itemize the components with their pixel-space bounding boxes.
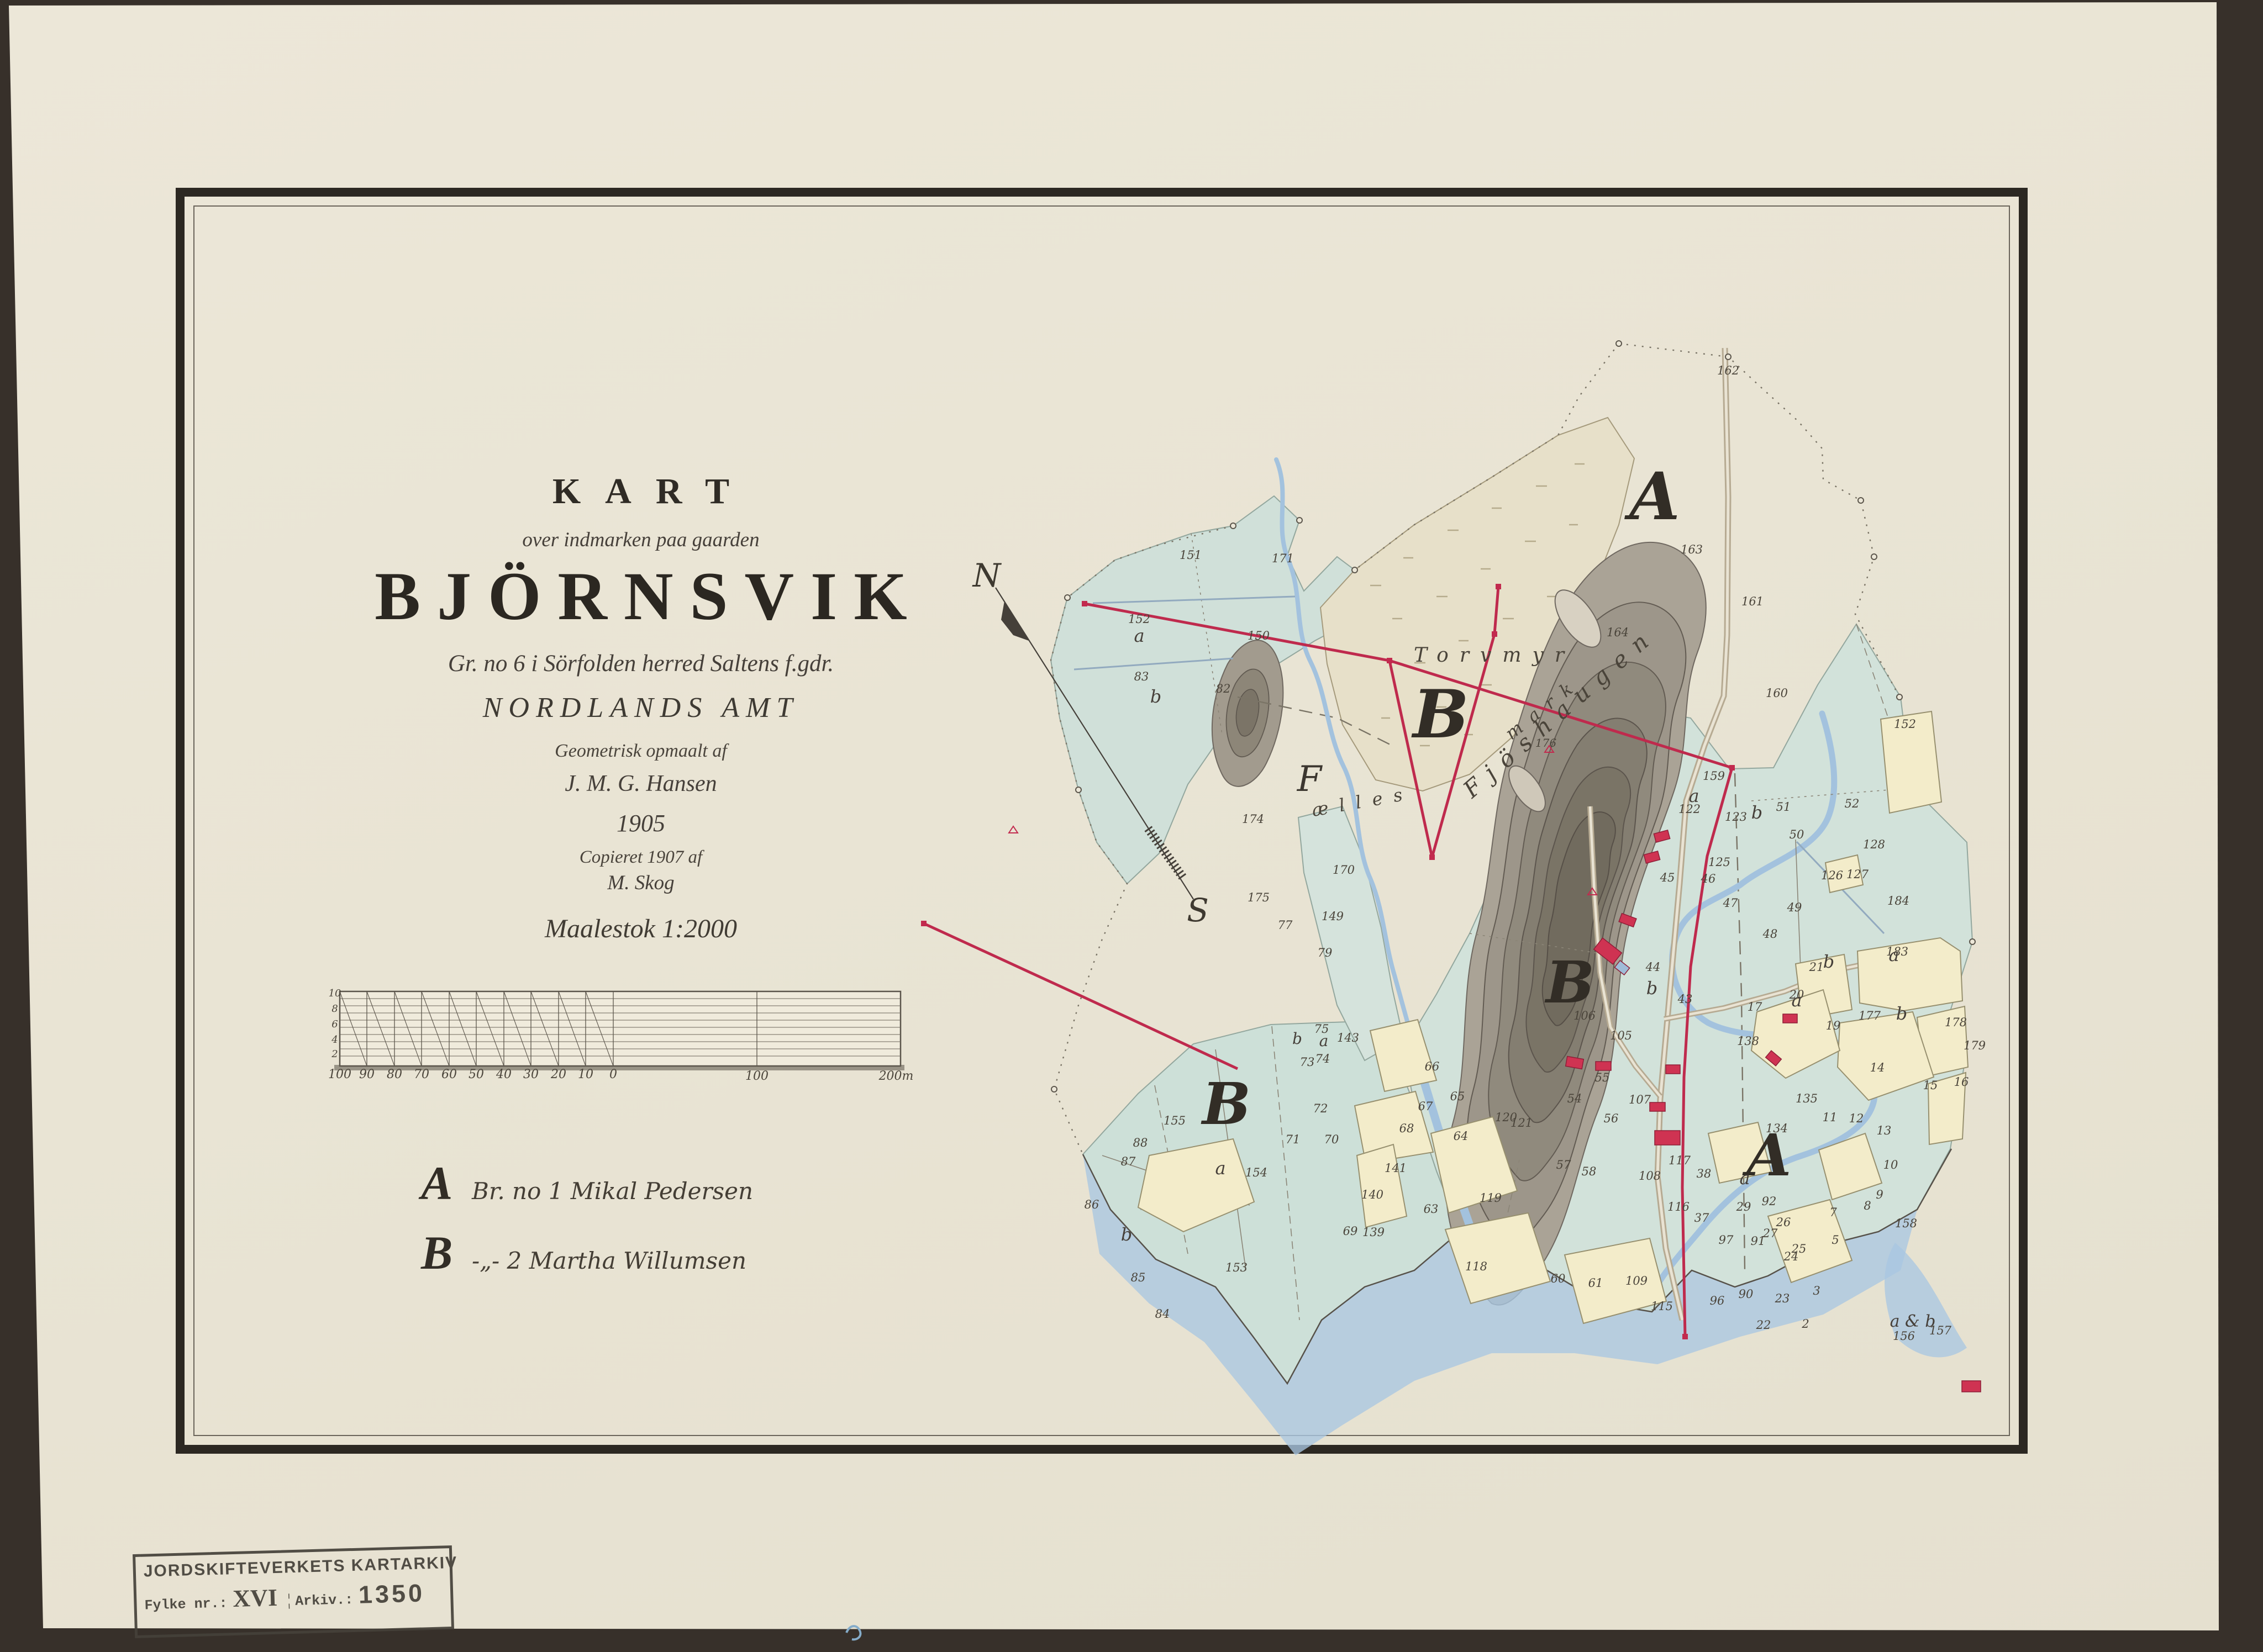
map-label: b [1646,978,1657,999]
scale-bar [334,991,904,1070]
map-label: 163 [1681,543,1703,556]
stamp-fylke-value: XVI [233,1584,278,1613]
map-label: 135 [1796,1092,1818,1105]
blue-pencil-mark [846,1626,860,1639]
map-label: 79 [1318,946,1333,959]
map-subtitle: over indmarken paa gaarden [254,528,1028,552]
map-label: 55 [1595,1071,1610,1084]
map-label: 159 [1703,769,1725,783]
map-label: 92 [1762,1195,1777,1208]
map-label: 175 [1248,891,1270,904]
map-label: 8 [1864,1199,1871,1212]
map-label: 43 [1677,993,1693,1006]
map-label: 66 [1425,1060,1440,1073]
map-label: 5 [1832,1233,1839,1247]
map-label: 85 [1131,1271,1146,1284]
stamp-title: JORDSKIFTEVERKETS KARTARKIV [143,1554,442,1581]
map-label: 30 [523,1068,539,1081]
map-label: 13 [1877,1124,1892,1137]
map-kicker: KART [254,471,1028,513]
map-label: 128 [1863,838,1885,851]
map-label: 51 [1776,800,1791,814]
map-label: 47 [1723,896,1738,910]
map-label: 100 [328,1068,351,1081]
stamp-arkiv-label: Arkiv.: [295,1592,354,1609]
map-label: B [1201,1070,1251,1138]
map-label: 151 [1180,548,1202,562]
map-label: 176 [1535,736,1556,750]
survey-year: 1905 [254,809,1028,837]
map-label: 86 [1085,1198,1099,1211]
map-label: 72 [1313,1102,1328,1115]
map-label: 200m [878,1069,914,1083]
map-label: 171 [1272,552,1294,565]
stamp-arkiv-value: 1350 [358,1579,425,1609]
map-label: 2 [331,1048,338,1060]
map-label: 24 [1783,1250,1799,1263]
legend-row-a: A Br. no 1 Mikal Pedersen [421,1155,874,1211]
map-label: 4 [331,1034,338,1046]
map-label: 160 [1766,687,1788,700]
map-label: 90 [1739,1287,1754,1301]
legend-letter-a: A [421,1155,472,1211]
legend-row-b: B -„- 2 Martha Willumsen [421,1225,874,1280]
map-label: 6 [331,1018,338,1030]
legend-text-b: -„- 2 Martha Willumsen [472,1247,746,1274]
map-label: 48 [1762,927,1778,941]
map-label: 153 [1225,1261,1248,1274]
map-label: 84 [1155,1307,1170,1321]
map-label: 164 [1607,626,1629,639]
map-label: 69 [1343,1225,1358,1238]
map-label: B [1411,675,1469,753]
map-label: 90 [359,1068,375,1081]
map-label: 19 [1826,1019,1841,1032]
map-label: 184 [1887,894,1909,907]
map-label: A [1624,458,1680,535]
map-label: 152 [1128,613,1150,626]
map-label: 174 [1242,812,1264,826]
region-line: Gr. no 6 i Sörfolden herred Saltens f.gd… [254,650,1028,677]
map-label: 107 [1629,1093,1651,1106]
map-label: 0 [609,1068,617,1081]
map-label: 49 [1787,901,1802,914]
map-label: b [1823,951,1834,972]
map-label: 3 [1813,1284,1820,1297]
map-label: 57 [1556,1158,1571,1171]
archive-stamp: JORDSKIFTEVERKETS KARTARKIV Fylke nr.: X… [133,1545,454,1638]
map-label: 10 [578,1068,593,1081]
copyist-name: M. Skog [254,871,1028,895]
map-label: 87 [1121,1155,1136,1168]
map-label: 52 [1845,797,1860,810]
map-label: 118 [1465,1260,1487,1273]
farm-building [1666,1065,1680,1074]
map-label: 126 [1821,869,1843,882]
map-label: a [1739,1168,1750,1189]
map-label: 22 [1756,1318,1771,1332]
map-label: 11 [1823,1111,1838,1124]
map-label: 117 [1669,1154,1691,1167]
map-label: B [1544,948,1594,1016]
map-label: 64 [1454,1130,1469,1143]
map-label: 7 [1829,1206,1837,1219]
map-label: 125 [1708,856,1730,869]
map-label: 75 [1314,1022,1329,1036]
map-label: 122 [1678,803,1701,816]
map-label: 183 [1886,945,1908,958]
map-label: 65 [1450,1090,1465,1103]
map-label: 179 [1964,1039,1986,1052]
map-label: 82 [1216,682,1231,695]
copied-line: Copieret 1907 af [254,847,1028,868]
map-label: 162 [1717,364,1739,377]
surveyed-line: Geometrisk opmaalt af [254,741,1028,762]
map-label: a [1215,1158,1225,1179]
red-line-southwest [924,923,1238,1069]
map-label: 106 [1573,1009,1596,1022]
map-label: 100 [745,1069,769,1083]
map-label: 45 [1660,871,1675,884]
map-label: 77 [1278,919,1293,932]
scanned-map-photo: { "document_type": "historical cadastral… [0,0,2263,1652]
map-label: 61 [1588,1276,1603,1290]
map-label: 50 [1790,828,1804,841]
map-label: 74 [1315,1052,1330,1065]
map-label: 10 [329,988,341,999]
legend-letter-b: B [421,1225,472,1280]
map-label: 150 [1248,629,1270,642]
stamp-fylke-label: Fylke nr.: [144,1595,228,1613]
farm-building [1655,1131,1680,1145]
map-label: 60 [441,1068,457,1081]
map-label: 29 [1736,1200,1751,1213]
map-label: 12 [1849,1112,1864,1125]
map-label: 20 [1789,988,1804,1001]
map-label: 161 [1741,595,1764,608]
map-label: 120 [1495,1111,1517,1124]
map-label: 50 [469,1068,484,1081]
map-label: 149 [1322,910,1344,923]
map-title: BJÖRNSVIK [254,557,1028,636]
map-label: 116 [1667,1200,1690,1213]
map-label: 20 [550,1068,566,1081]
map-label: 58 [1582,1165,1597,1178]
map-label: 40 [496,1068,512,1081]
owner-legend: A Br. no 1 Mikal Pedersen B -„- 2 Martha… [421,1155,874,1295]
map-label: 23 [1775,1292,1790,1305]
map-label: 96 [1710,1294,1725,1307]
farm-building [1650,1102,1665,1111]
map-label: 143 [1337,1031,1359,1044]
map-label: 154 [1245,1166,1267,1179]
amt-line: NORDLANDS AMT [254,692,1028,724]
map-label: 134 [1766,1122,1788,1135]
map-label: 141 [1385,1162,1407,1175]
map-label: b [1121,1224,1132,1245]
map-label: 70 [414,1068,429,1081]
map-label: 105 [1610,1029,1632,1042]
map-label: 70 [1324,1133,1339,1146]
map-label: 21 [1809,960,1824,974]
map-label: 10 [1883,1158,1898,1171]
map-label: 123 [1725,810,1747,824]
map-label: F [1297,759,1323,800]
map-label: 60 [1551,1272,1566,1285]
farm-building [1962,1381,1981,1392]
map-label: 71 [1286,1133,1301,1146]
map-label: 170 [1333,863,1355,877]
scale-statement: Maalestok 1:2000 [254,914,1028,944]
map-label: 108 [1639,1169,1661,1183]
map-label: 109 [1625,1274,1648,1287]
map-label: 155 [1164,1114,1186,1127]
stamp-details: Fylke nr.: XVI ¦ Arkiv.: 1350 [144,1578,443,1615]
map-label: a [1134,625,1144,646]
map-label: 8 [331,1003,338,1015]
map-label: b [1292,1030,1302,1048]
map-label: 68 [1399,1122,1414,1135]
map-label: 138 [1737,1035,1759,1048]
map-label: 83 [1134,670,1149,683]
map-label: 17 [1748,1000,1762,1014]
map-label: 152 [1894,717,1916,731]
map-label: 73 [1300,1055,1315,1069]
legend-text-a: Br. no 1 Mikal Pedersen [472,1178,753,1205]
map-label: 115 [1651,1300,1673,1313]
map-label: 38 [1697,1167,1712,1180]
stamp-separator: ¦ [287,1591,291,1609]
map-label: Torvmyr [1414,644,1575,667]
map-label: 44 [1645,960,1661,974]
map-label: b [1751,802,1762,823]
map-label: 97 [1719,1233,1734,1247]
map-label: 67 [1418,1100,1433,1113]
map-label: 37 [1694,1211,1709,1225]
map-label: 140 [1361,1188,1383,1201]
title-block: KART over indmarken paa gaarden BJÖRNSVI… [254,471,1028,944]
map-label: 56 [1604,1112,1619,1125]
map-label: 14 [1870,1061,1885,1074]
map-label: 139 [1362,1226,1385,1239]
farm-building [1596,1062,1611,1070]
map-label: 178 [1945,1016,1967,1029]
map-label: ælles [1310,782,1415,821]
map-label: 16 [1954,1075,1969,1089]
map-label: 157 [1929,1324,1952,1337]
map-label: 91 [1751,1234,1766,1248]
map-label: b [1150,686,1161,707]
map-label: b [1896,1003,1907,1024]
map-label: 119 [1480,1191,1502,1205]
map-label: 158 [1895,1217,1917,1230]
map-label: 9 [1876,1188,1883,1201]
map-label: 177 [1859,1009,1881,1022]
surveyor-name: J. M. G. Hansen [254,770,1028,797]
map-label: 26 [1776,1216,1791,1229]
map-label: 2 [1801,1317,1809,1331]
map-label: 127 [1846,868,1869,881]
map-label: 46 [1701,872,1716,885]
map-label: 54 [1567,1092,1582,1105]
map-label: 15 [1923,1079,1938,1092]
map-label: 63 [1424,1202,1439,1216]
map-label: 88 [1133,1136,1148,1149]
map-label: S [1187,891,1209,929]
map-label: 156 [1893,1329,1915,1343]
map-label: 80 [387,1068,402,1081]
farm-building [1783,1014,1797,1023]
